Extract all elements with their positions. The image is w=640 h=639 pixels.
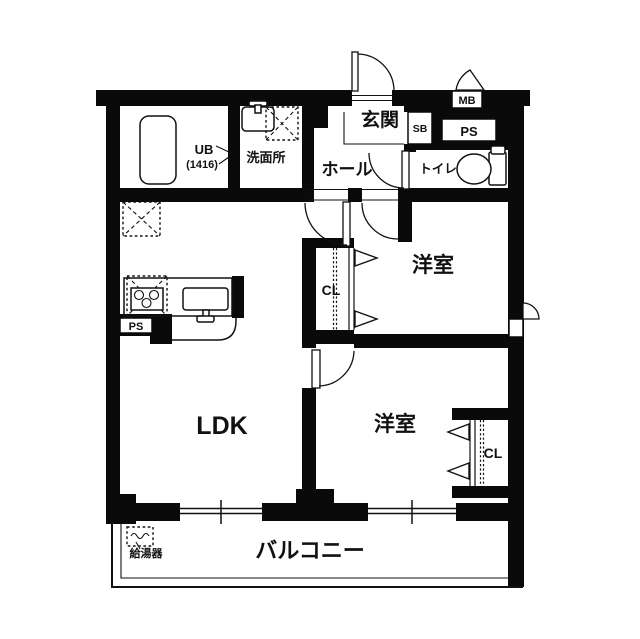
label-bedroom-bottom: 洋室	[374, 412, 416, 436]
label-closet-top: CL	[322, 282, 341, 298]
label-shoe-box: SB	[413, 123, 428, 135]
label-balcony: バルコニー	[255, 538, 365, 563]
label-hall: ホール	[322, 160, 373, 179]
label-unit-bath: UB	[195, 142, 214, 157]
label-unit-bath-size: (1416)	[186, 159, 218, 171]
floor-plan-page: UB (1416) 洗面所 玄関 SB MB PS トイレ ホール 洋室 CL …	[0, 0, 640, 639]
bathtub-icon	[140, 116, 176, 184]
label-meter-box: MB	[458, 95, 475, 107]
floor-plan: UB (1416) 洗面所 玄関 SB MB PS トイレ ホール 洋室 CL …	[0, 0, 640, 639]
label-bedroom-top: 洋室	[412, 253, 454, 277]
label-closet-bottom: CL	[484, 445, 503, 461]
label-ldk: LDK	[196, 412, 247, 440]
label-pipe-space-top: PS	[460, 124, 478, 139]
label-water-heater: 給湯器	[130, 546, 164, 560]
wall-hatch-box	[509, 319, 523, 337]
label-toilet: トイレ	[419, 162, 457, 176]
label-pipe-space-kitchen: PS	[129, 321, 144, 333]
label-genkan: 玄関	[361, 108, 399, 131]
label-washroom: 洗面所	[246, 150, 285, 165]
